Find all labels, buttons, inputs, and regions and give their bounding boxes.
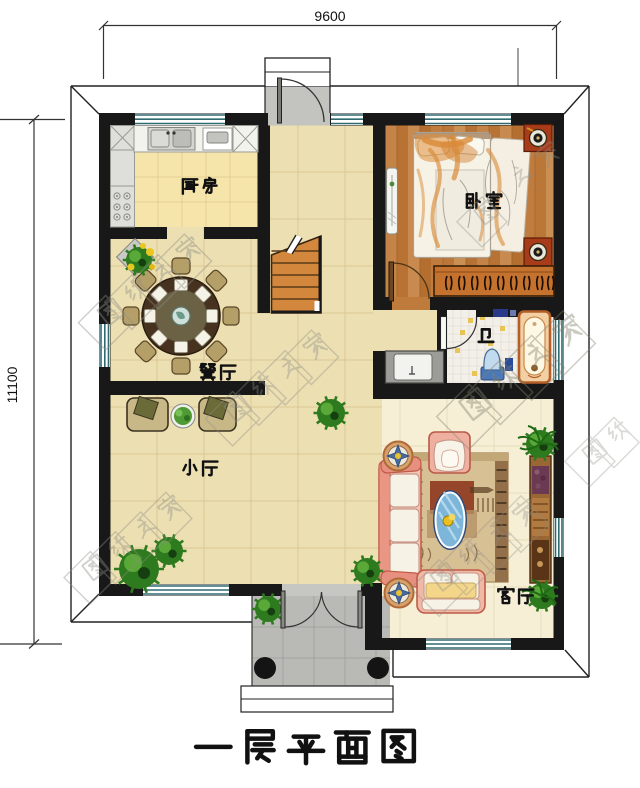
svg-text:11100: 11100	[4, 366, 20, 403]
svg-text:9600: 9600	[314, 8, 345, 24]
